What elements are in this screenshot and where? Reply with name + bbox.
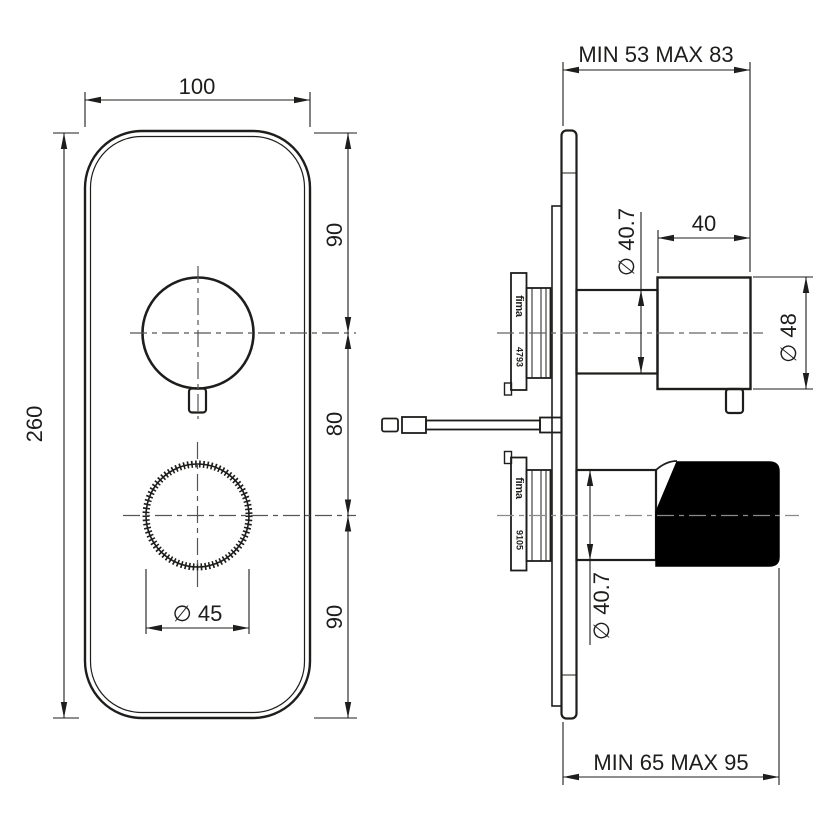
dim-upper-head-length bbox=[658, 230, 750, 273]
side-lower-handle bbox=[497, 461, 799, 566]
lower-cartridge-body bbox=[511, 458, 527, 571]
label-seg-top: 90 bbox=[322, 223, 347, 247]
side-wall-flange bbox=[552, 206, 562, 706]
upper-handle-neck bbox=[577, 290, 658, 374]
lever-shaft bbox=[426, 421, 540, 430]
side-plate-outline bbox=[562, 131, 577, 719]
side-view: fima 4793 fima 9105 bbox=[382, 62, 813, 785]
upper-cartridge-code-label: 4793 bbox=[515, 347, 525, 367]
extension-line bbox=[563, 62, 750, 272]
front-upper-knob bbox=[130, 266, 356, 419]
mixer-technical-drawing: fima 4793 fima 9105 bbox=[0, 0, 840, 833]
side-plate-edge-tick bbox=[562, 173, 577, 675]
label-plate-height: 260 bbox=[22, 406, 47, 443]
dimension-labels: 100 260 90 80 90 ∅ 45 MIN 53 MAX 83 40 ∅… bbox=[22, 42, 801, 775]
lower-cartridge-code-label: 9105 bbox=[515, 530, 525, 550]
upper-cartridge: fima 4793 bbox=[505, 273, 551, 395]
lever-mount-block bbox=[540, 418, 562, 433]
label-seg-bottom: 90 bbox=[322, 605, 347, 629]
upper-cartridge-brand-label: fima bbox=[513, 295, 525, 318]
dim-plate-height bbox=[53, 133, 79, 718]
label-seg-mid: 80 bbox=[322, 412, 347, 436]
lower-handle-knurled-head bbox=[656, 462, 779, 566]
label-upper-head-diameter: ∅ 48 bbox=[776, 313, 801, 363]
label-depth-bottom: MIN 65 MAX 95 bbox=[593, 750, 748, 775]
front-lower-knob bbox=[123, 442, 356, 591]
label-upper-head-length: 40 bbox=[692, 211, 716, 236]
lever-segment bbox=[402, 417, 426, 433]
front-plate bbox=[85, 131, 310, 718]
dim-depth-top bbox=[563, 62, 750, 272]
extension-line bbox=[53, 133, 79, 718]
front-plate-outer-outline bbox=[85, 131, 310, 718]
label-depth-top: MIN 53 MAX 83 bbox=[578, 42, 733, 67]
label-lower-neck-diameter: ∅ 40.7 bbox=[589, 572, 614, 640]
lower-cartridge-brand-label: fima bbox=[513, 477, 525, 500]
technical-drawing-canvas: fima 4793 fima 9105 bbox=[0, 0, 840, 833]
label-plate-width: 100 bbox=[179, 74, 216, 99]
lower-cartridge: fima 9105 bbox=[505, 452, 551, 571]
lever-end-cap bbox=[382, 419, 398, 432]
side-plate bbox=[562, 131, 577, 719]
in-wall-lever bbox=[382, 417, 562, 433]
side-upper-handle bbox=[497, 278, 763, 414]
label-lower-knob-diameter: ∅ 45 bbox=[173, 601, 223, 626]
front-plate-inner-outline bbox=[91, 137, 305, 713]
upper-handle-tab bbox=[726, 389, 743, 413]
upper-cartridge-body bbox=[511, 273, 527, 390]
label-upper-neck-diameter: ∅ 40.7 bbox=[614, 208, 639, 276]
